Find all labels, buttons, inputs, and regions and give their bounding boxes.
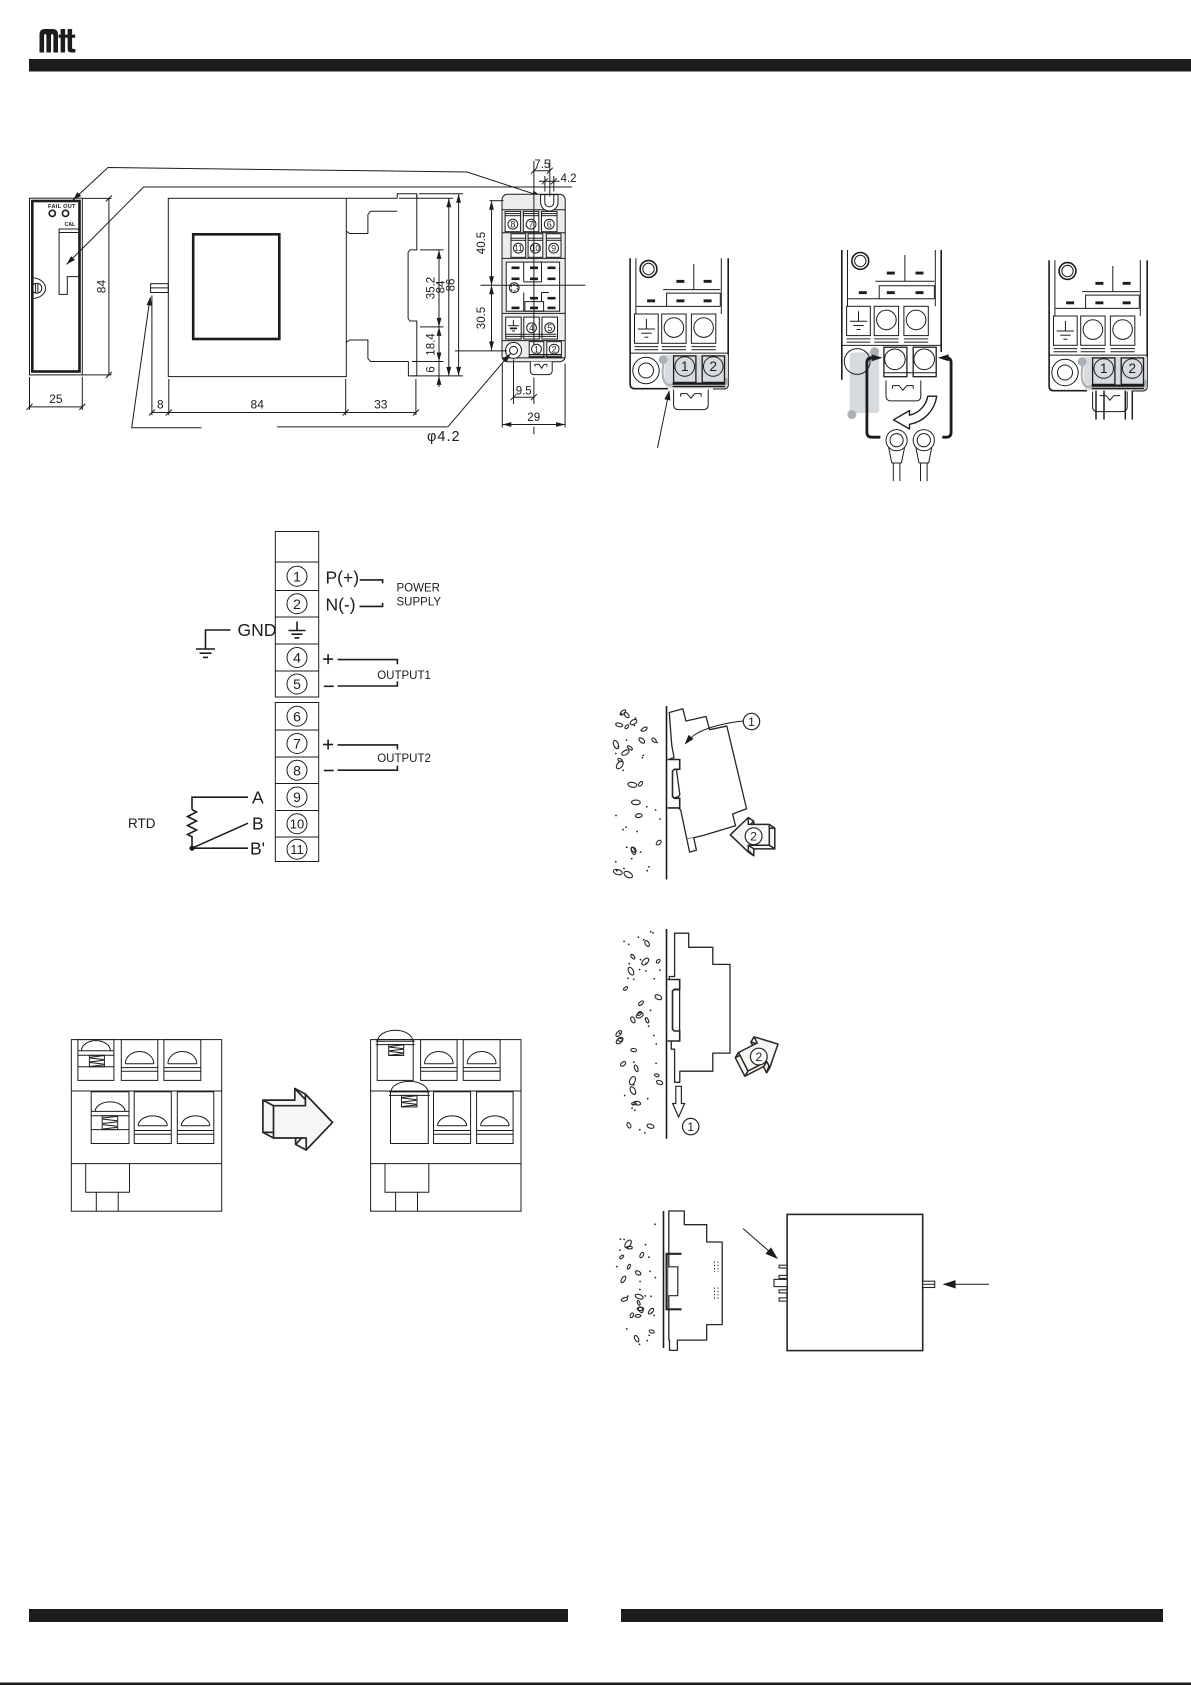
svg-text:40.5: 40.5 <box>476 232 488 254</box>
svg-text:CAL: CAL <box>65 222 76 228</box>
svg-text:1: 1 <box>687 1120 694 1134</box>
svg-text:10: 10 <box>290 816 304 831</box>
svg-text:1: 1 <box>293 568 301 584</box>
svg-text:10: 10 <box>531 244 540 253</box>
svg-text:RTD: RTD <box>128 816 156 831</box>
svg-text:OUTPUT2: OUTPUT2 <box>377 753 431 765</box>
svg-text:7: 7 <box>293 736 301 752</box>
svg-text:11: 11 <box>514 244 523 253</box>
svg-text:4.2: 4.2 <box>561 173 577 185</box>
svg-text:9: 9 <box>293 789 301 805</box>
svg-text:29: 29 <box>527 412 540 424</box>
svg-text:2: 2 <box>552 344 557 354</box>
svg-text:9: 9 <box>551 243 556 253</box>
svg-text:4: 4 <box>293 650 301 666</box>
svg-text:7.5: 7.5 <box>534 159 550 171</box>
svg-text:5: 5 <box>547 323 552 333</box>
svg-text:8: 8 <box>293 762 301 778</box>
svg-text:P(+): P(+) <box>326 568 360 588</box>
svg-text:B: B <box>252 814 264 834</box>
svg-text:7: 7 <box>529 219 534 229</box>
svg-text:1: 1 <box>748 715 755 729</box>
svg-text:2: 2 <box>750 830 757 844</box>
svg-text:5: 5 <box>293 676 301 692</box>
svg-text:A: A <box>252 788 264 808</box>
svg-text:8: 8 <box>510 219 515 229</box>
svg-text:6: 6 <box>426 366 438 372</box>
svg-text:4: 4 <box>529 323 534 333</box>
svg-text:B': B' <box>250 839 265 859</box>
svg-text:1: 1 <box>534 344 539 354</box>
svg-text:SUPPLY: SUPPLY <box>397 597 442 609</box>
svg-text:11: 11 <box>290 842 304 857</box>
svg-text:OUTPUT1: OUTPUT1 <box>377 670 431 682</box>
svg-text:2: 2 <box>710 359 718 374</box>
svg-text:9.5: 9.5 <box>516 386 532 398</box>
svg-text:30.5: 30.5 <box>476 307 488 329</box>
svg-text:6: 6 <box>547 219 552 229</box>
svg-text:POWER: POWER <box>397 583 440 595</box>
svg-text:2: 2 <box>755 1050 762 1064</box>
svg-text:GND: GND <box>238 620 277 640</box>
svg-text:φ4.2: φ4.2 <box>427 429 461 445</box>
svg-text:84: 84 <box>251 398 265 412</box>
svg-text:18.4: 18.4 <box>426 333 438 356</box>
svg-text:2: 2 <box>1129 361 1137 376</box>
svg-text:N(-): N(-) <box>326 595 356 615</box>
svg-text:8: 8 <box>157 398 164 412</box>
svg-text:1: 1 <box>1100 361 1108 376</box>
svg-text:2: 2 <box>293 596 301 612</box>
svg-text:86: 86 <box>445 279 457 292</box>
svg-text:33: 33 <box>374 398 388 412</box>
svg-text:FAIL OUT: FAIL OUT <box>48 204 76 210</box>
svg-text:84: 84 <box>95 280 109 294</box>
svg-text:6: 6 <box>293 708 301 724</box>
svg-text:1: 1 <box>681 359 689 374</box>
svg-text:25: 25 <box>49 392 63 406</box>
